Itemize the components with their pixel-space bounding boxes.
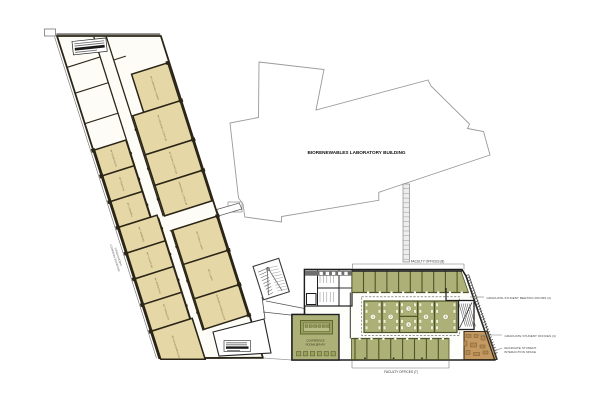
svg-text:GRADUATE STUDENT OFFICES (4): GRADUATE STUDENT OFFICES (4) xyxy=(505,334,556,338)
svg-text:BIORENEWABLES LABORATORY BUILD: BIORENEWABLES LABORATORY BUILDING xyxy=(307,150,405,155)
svg-text:FACULTY OFFICES (7): FACULTY OFFICES (7) xyxy=(384,370,418,374)
svg-text:6: 6 xyxy=(445,315,447,319)
svg-text:4: 4 xyxy=(408,323,410,327)
svg-text:GRADUATE STUDENT: GRADUATE STUDENT xyxy=(504,346,537,350)
svg-text:INTERACTION SPACE: INTERACTION SPACE xyxy=(504,350,536,354)
svg-text:3: 3 xyxy=(408,307,410,311)
svg-text:GRADUATE STUDENT MEETING ROOMS: GRADUATE STUDENT MEETING ROOMS (2) xyxy=(487,296,552,300)
svg-text:5: 5 xyxy=(425,315,427,319)
svg-text:2: 2 xyxy=(390,315,392,319)
svg-text:1: 1 xyxy=(372,315,374,319)
svg-text:FACULTY OFFICES (8): FACULTY OFFICES (8) xyxy=(411,260,445,264)
